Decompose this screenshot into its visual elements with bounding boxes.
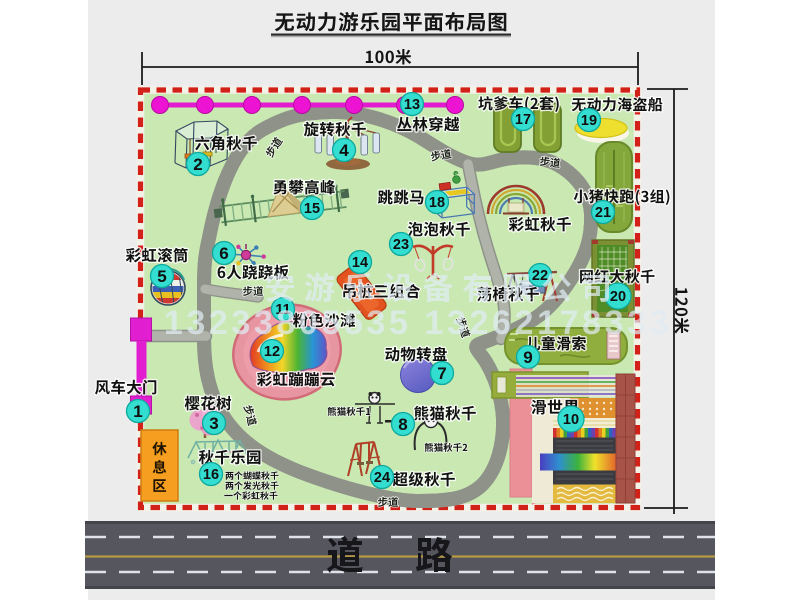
svg-text:15: 15: [304, 201, 320, 217]
svg-text:13: 13: [404, 97, 420, 113]
svg-text:7: 7: [437, 364, 446, 383]
svg-text:18: 18: [429, 195, 445, 211]
svg-text:4: 4: [339, 141, 349, 160]
svg-text:9: 9: [523, 348, 532, 367]
svg-text:21: 21: [595, 205, 611, 221]
svg-text:20: 20: [610, 289, 626, 305]
svg-text:8: 8: [398, 415, 407, 434]
svg-text:17: 17: [515, 112, 531, 128]
svg-text:14: 14: [352, 255, 368, 271]
svg-text:23: 23: [393, 237, 409, 253]
svg-text:24: 24: [374, 470, 390, 486]
svg-text:1: 1: [133, 402, 142, 421]
svg-text:6: 6: [219, 244, 228, 263]
svg-text:19: 19: [581, 113, 597, 129]
svg-text:13233805535 13262178333: 13233805535 13262178333: [164, 304, 672, 342]
svg-text:16: 16: [203, 467, 219, 483]
svg-text:12: 12: [264, 344, 280, 360]
svg-text:2: 2: [193, 155, 202, 174]
svg-text:10: 10: [563, 412, 579, 428]
svg-text:5: 5: [157, 267, 166, 286]
svg-text:3: 3: [209, 414, 218, 433]
